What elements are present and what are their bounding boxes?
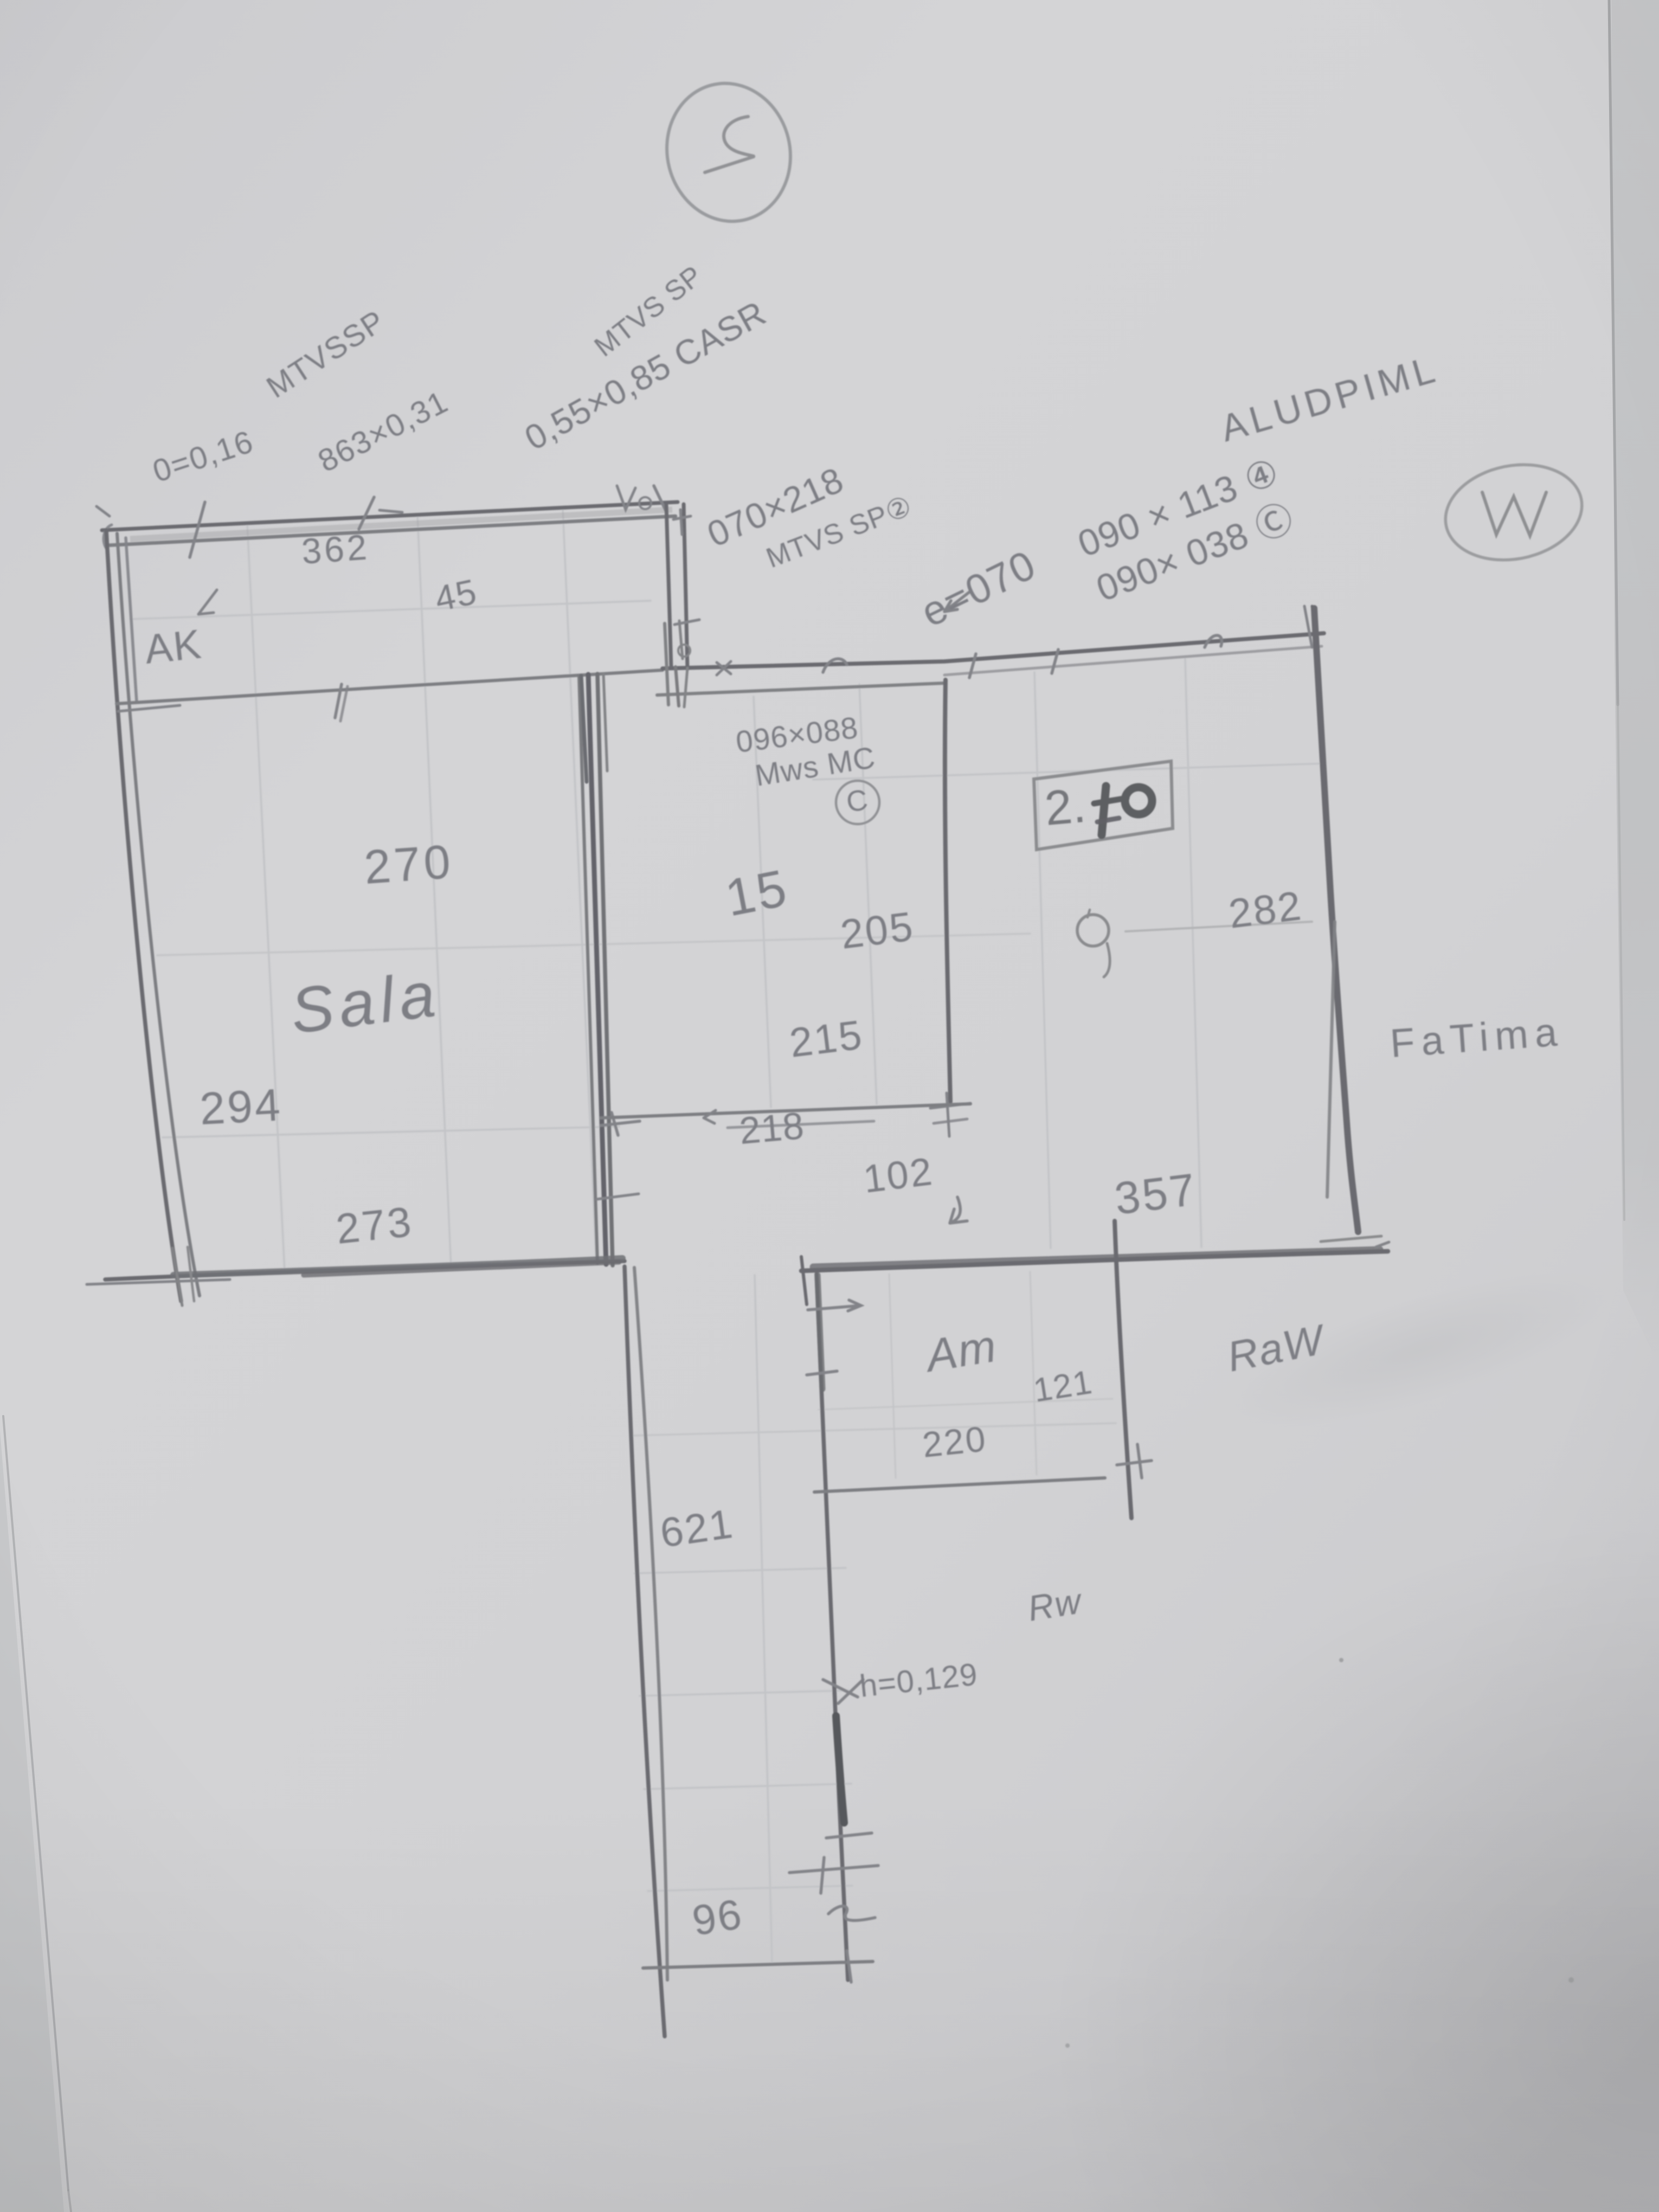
svg-text:273: 273 [334,1198,416,1253]
svg-text:15: 15 [721,859,793,928]
svg-text:Rw: Rw [1025,1580,1086,1629]
svg-text:45: 45 [432,571,481,619]
svg-text:AK: AK [143,621,204,673]
svg-text:270: 270 [362,834,455,894]
svg-text:215: 215 [787,1012,866,1066]
svg-text:C: C [844,783,870,819]
svg-text:102: 102 [861,1150,936,1201]
svg-text:205: 205 [838,903,917,958]
svg-text:220: 220 [921,1418,989,1465]
svg-text:282: 282 [1226,883,1305,937]
svg-text:218: 218 [738,1104,806,1152]
svg-text:294: 294 [198,1079,284,1134]
svg-text:2.: 2. [1043,779,1088,836]
svg-text:357: 357 [1112,1163,1200,1224]
svg-text:362: 362 [300,526,371,571]
svg-text:96: 96 [689,1889,746,1944]
